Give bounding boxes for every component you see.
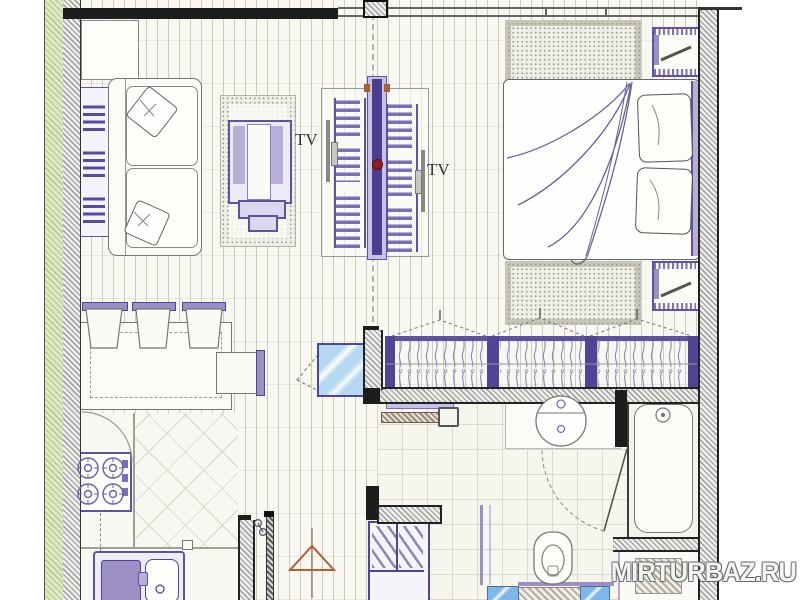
tv-shelf-right-gap [388, 196, 412, 206]
wardrobe-divider [487, 336, 499, 389]
bed-pillow [637, 93, 693, 163]
sink-basin-left [101, 560, 141, 600]
pier [363, 330, 383, 390]
bathroom-vanity [505, 398, 621, 449]
tv-screen-left [326, 120, 330, 182]
tub-wall-post [615, 390, 627, 447]
apartment-floor-plan: TV TV [0, 0, 800, 600]
tv-shelf-left-gap [336, 182, 360, 192]
nightstand-side [654, 269, 659, 299]
stove-knob [122, 474, 128, 482]
bookshelf-slats [83, 101, 105, 131]
tv-bracket-left [331, 142, 338, 166]
chair-rail [82, 302, 128, 311]
window-tick [605, 7, 607, 16]
nightstand-top [652, 27, 702, 77]
glass-panel [317, 343, 366, 397]
tv-partition-cap [364, 84, 370, 92]
armchair-center [247, 124, 271, 200]
wardrobe-divider [385, 336, 395, 389]
bookshelf-slats [83, 193, 105, 223]
counter-socket [182, 540, 193, 550]
wardrobe-rail [385, 336, 698, 341]
bedroom-rug-top [505, 20, 641, 86]
shoe-cabinet-divider [396, 523, 398, 571]
top-window [338, 7, 698, 17]
bath-mat [518, 587, 582, 600]
tablecloth-dashed [90, 332, 222, 398]
armchair-pad [233, 126, 245, 184]
hall-wall [377, 505, 442, 524]
chair-rail [132, 302, 176, 311]
nightstand-side [654, 35, 659, 65]
armchair-step [248, 215, 278, 232]
wardrobe-divider [585, 336, 597, 389]
wardrobe-divider [688, 336, 698, 389]
bookshelf-slats [83, 147, 105, 177]
tv-shelf-right-slats [388, 104, 412, 252]
bookshelf [80, 87, 110, 237]
chair-right-rail [256, 350, 265, 396]
watermark: MIRTURBAZ.RU [608, 557, 796, 588]
toilet-partition [480, 505, 483, 585]
sofa [108, 78, 202, 256]
shoe-cabinet-cell [399, 526, 423, 568]
armchair [228, 120, 292, 204]
kitchen-counter-line-v [133, 413, 135, 547]
bath-mat-blue [487, 586, 519, 600]
right-wall-top-line [698, 7, 742, 10]
bath-mat-blue [580, 586, 610, 600]
tv-shelf-left-slats [336, 98, 360, 248]
entrance-door-cap [264, 511, 274, 517]
nightstand-bottom [652, 261, 702, 311]
top-wall-solid [63, 8, 338, 19]
chair-rail [182, 302, 226, 311]
sink-basin-right [145, 559, 179, 600]
tv-shelf-right-gap [388, 150, 412, 160]
shoe-cabinet [368, 521, 430, 600]
towel-rail-bracket [438, 407, 459, 427]
armchair-pad [271, 126, 283, 184]
right-wall [698, 8, 719, 600]
tv-shelf-left-gap [336, 138, 360, 148]
tv-label-right: TV [427, 160, 450, 180]
bedroom-rug-bottom [505, 261, 641, 325]
kitchen-tiles [133, 413, 238, 547]
tv-partition-cap [384, 84, 390, 92]
kitchen-hall-wall [238, 520, 255, 600]
stove-knob [122, 488, 128, 496]
tv-bracket-right [415, 170, 422, 194]
toilet-partition [489, 505, 491, 585]
stove-knob [122, 460, 128, 468]
tv-center-marker [372, 159, 383, 170]
bathtub-basin [634, 404, 693, 533]
chair-right-seat [216, 352, 258, 394]
side-table [81, 20, 139, 80]
shoe-cabinet-shelf [370, 570, 424, 572]
kitchen-counter-line-h [80, 547, 238, 549]
left-wall [63, 0, 81, 600]
top-wall-column [363, 0, 388, 18]
nightstand-hatch [654, 263, 696, 269]
shoe-cabinet-cell [372, 526, 396, 568]
tub-bottom-wall [613, 537, 698, 552]
entrance-door-leaf [266, 514, 274, 600]
nightstand-hatch [654, 29, 696, 35]
window-tick [545, 7, 547, 16]
nightstand-hatch [654, 303, 696, 309]
pier-base [363, 388, 380, 404]
sink-faucet [138, 572, 148, 586]
dining-table [80, 322, 232, 410]
kitchen-sink-unit [93, 551, 185, 600]
nightstand-hatch [654, 69, 696, 75]
tv-label-left: TV [295, 130, 318, 150]
bed-pillow [635, 167, 693, 235]
bathroom-top-wall [377, 387, 698, 404]
